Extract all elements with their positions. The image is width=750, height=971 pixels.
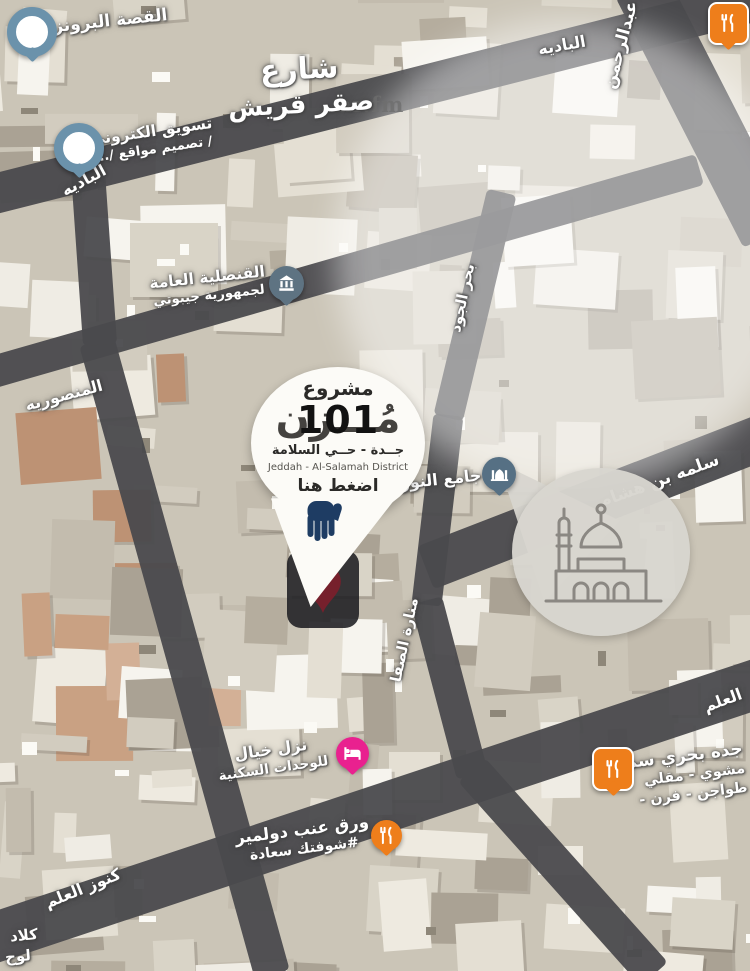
project-callout[interactable]: مشروع مُـــزن 101 جــدة - حــي السلامة J…: [251, 367, 425, 607]
callout-brand-number: 101: [297, 395, 379, 445]
satellite-map: ar.fm القصة البرونزيةتسويق الكتروني/ تصم…: [0, 0, 750, 971]
consulate-pin[interactable]: [269, 266, 304, 304]
restaurant-topright-pin[interactable]: [708, 2, 749, 48]
callout-location-ar: جــدة - حــي السلامة: [251, 443, 425, 458]
jame-alnoor-pin[interactable]: [482, 457, 516, 494]
waraq-enab-pin[interactable]: [371, 820, 402, 854]
qissa-bronzia-pin[interactable]: [7, 7, 57, 60]
callout-location-en: Jeddah - Al-Salamah District: [251, 462, 425, 473]
callout-brand: مُـــزن 101: [251, 394, 425, 444]
callout-cta-label[interactable]: اضغط هنا: [251, 476, 425, 496]
hand-pointer-icon[interactable]: [304, 496, 344, 554]
nozol-khayal-pin[interactable]: [336, 737, 369, 773]
samak-bahri-pin[interactable]: [592, 747, 634, 794]
tasweeq-pin[interactable]: [54, 123, 104, 176]
